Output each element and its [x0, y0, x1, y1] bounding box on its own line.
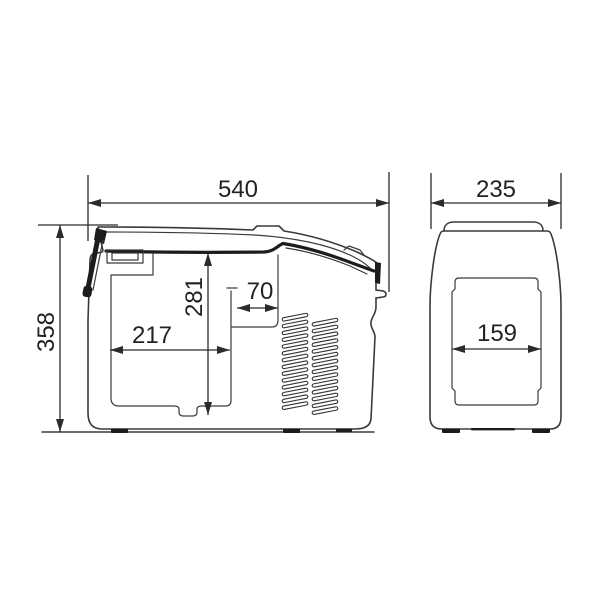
foot: [442, 429, 460, 434]
latch-box-inner: [112, 253, 138, 260]
arrowhead-bottom: [56, 419, 64, 432]
arrowhead-right: [217, 346, 230, 354]
hinge-bar: [375, 262, 381, 284]
arrowhead-top: [204, 253, 212, 266]
drawing-svg: 540 235 358 281 217 70: [0, 0, 600, 600]
dim-358-label: 358: [33, 312, 60, 352]
carry-handle: [82, 228, 107, 298]
dim-235-label: 235: [476, 176, 516, 203]
arrowhead-left: [237, 304, 250, 312]
arrowhead-left: [110, 346, 123, 354]
vent-column-right: [312, 318, 338, 415]
arrowhead-top: [56, 225, 64, 238]
dim-281-label: 281: [181, 277, 208, 317]
dim-540-label: 540: [218, 176, 258, 203]
dim-70: 70: [237, 278, 278, 312]
base-shadow: [471, 428, 515, 430]
dim-281: 281: [181, 253, 212, 415]
dim-217: 217: [110, 322, 230, 354]
foot: [336, 429, 352, 433]
dim-358: 358: [33, 225, 118, 432]
foot: [532, 429, 550, 434]
foot: [111, 429, 128, 434]
dim-159: 159: [452, 320, 541, 353]
vent-grille: [282, 313, 338, 415]
handle-end-cap: [82, 285, 93, 297]
arrowhead-right: [376, 199, 389, 207]
dim-70-label: 70: [247, 278, 274, 305]
foot: [283, 429, 300, 434]
lid-parting-line: [106, 244, 374, 272]
cooler-dimension-drawing: 540 235 358 281 217 70: [0, 0, 600, 600]
vent-column-left: [282, 313, 308, 410]
arrowhead-left: [431, 199, 444, 207]
arrowhead-left: [452, 345, 465, 353]
dim-159-label: 159: [477, 320, 517, 347]
arrowhead-left: [88, 199, 101, 207]
dim-235: 235: [431, 173, 561, 229]
arrowhead-right: [548, 199, 561, 207]
arrowhead-right: [265, 304, 278, 312]
dim-217-label: 217: [132, 322, 172, 349]
latch-catch: [376, 290, 386, 298]
end-lid-top: [444, 222, 543, 231]
side-view: [42, 226, 386, 433]
arrowhead-right: [528, 345, 541, 353]
arrowhead-bottom: [204, 402, 212, 415]
